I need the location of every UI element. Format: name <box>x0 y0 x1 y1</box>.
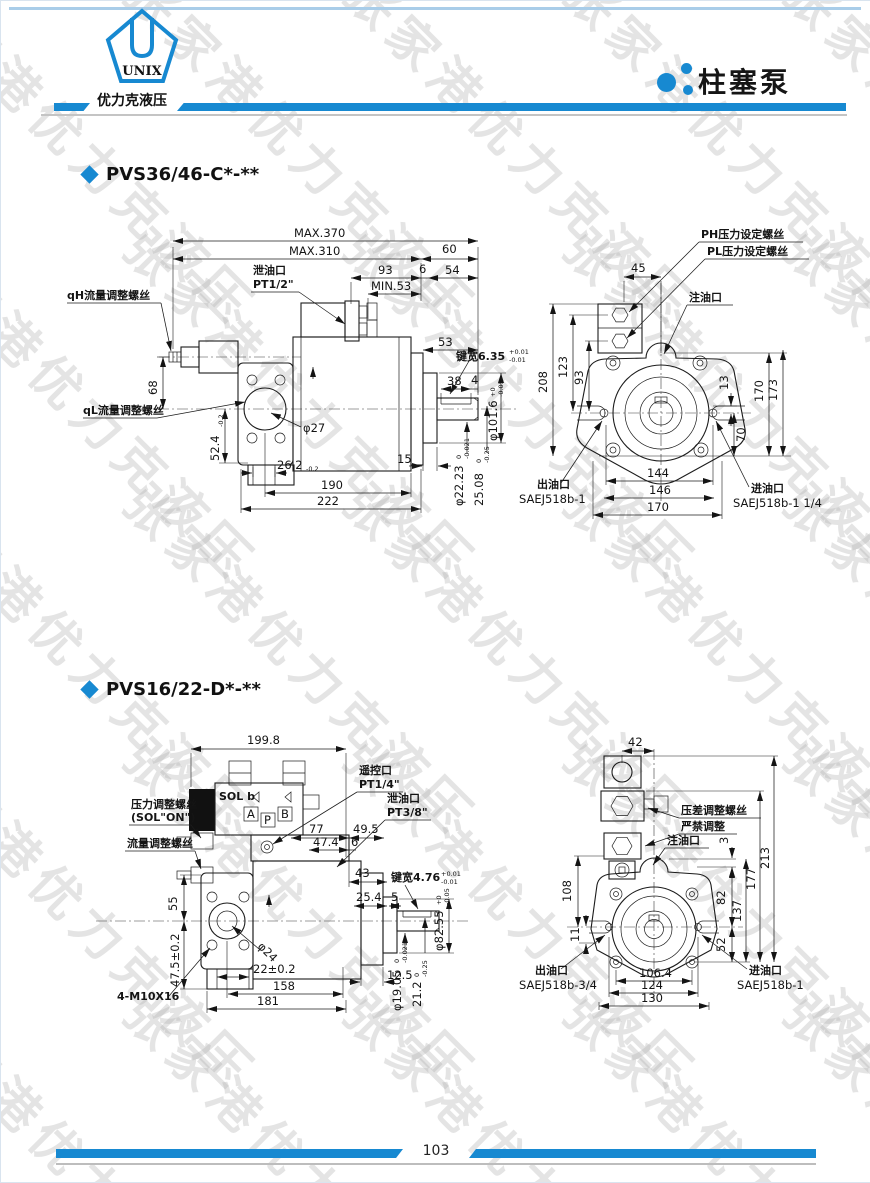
dim-4: 4 <box>471 373 478 387</box>
dim-77: 77 <box>309 822 324 836</box>
dim-21.2-tol-upper: 0 <box>413 973 421 977</box>
dim-dia101.6-tol-lower: -0.05 <box>497 380 505 397</box>
dim-170-bottom: 170 <box>647 500 669 514</box>
dim-52.4: 52.4 <box>208 435 222 461</box>
dim-dia19.05-tol-lower: -0.021 <box>401 942 409 963</box>
dim-55: 55 <box>166 896 180 911</box>
dim-6: 6 <box>419 262 426 276</box>
dim-25.4: 25.4 <box>356 890 382 904</box>
section1-model: PVS36/46-C*-** <box>106 164 259 185</box>
dim-max370: MAX.370 <box>294 226 345 240</box>
dim-dia101.6-tol-upper: +0 <box>489 387 497 397</box>
dim-43: 43 <box>355 866 370 880</box>
dim-45: 45 <box>631 261 646 275</box>
dim-5: 5 <box>391 890 398 904</box>
dim-21.2: 21.2 <box>410 981 424 1007</box>
dim-53: 53 <box>438 335 453 349</box>
dim-170-right: 170 <box>752 380 766 402</box>
diff-adjust-label: 压差调整螺丝 <box>681 803 747 817</box>
dim-60: 60 <box>442 242 457 256</box>
dim-min53: MIN.53 <box>371 279 411 293</box>
inlet-port-spec: SAEJ518b-1 1/4 <box>733 496 822 510</box>
dim-93: 93 <box>572 370 586 385</box>
fill-port-label: 注油口 <box>667 833 700 847</box>
dim-keywidth-tol-upper: +0.01 <box>441 870 461 878</box>
dim-47.4: 47.4 <box>313 835 339 849</box>
valve-port-b: B <box>281 807 289 821</box>
page-number: 103 <box>406 1143 466 1159</box>
dim-25.08-tol-lower: -0.25 <box>483 446 491 463</box>
section2-model: PVS16/22-D*-** <box>106 679 261 700</box>
dim-dia22.23: φ22.23 <box>452 465 466 506</box>
pl-setting-label: PL压力设定螺丝 <box>707 244 788 258</box>
dim-177: 177 <box>744 868 758 890</box>
outlet-port-spec: SAEJ518b-3/4 <box>519 978 597 992</box>
pvs1622-front-view: 压差调整螺丝 严禁调整 注油口 出油口 SAEJ518b-3/4 进油口 SAE… <box>519 735 804 1010</box>
drain-port-label: 泄油口 <box>253 263 286 277</box>
logo-text: UNIX <box>122 64 162 79</box>
dim-181: 181 <box>257 994 279 1008</box>
dim-keywidth-tol-lower: -0.01 <box>441 878 458 886</box>
dim-173: 173 <box>766 379 780 401</box>
dim-158: 158 <box>273 979 295 993</box>
diamond-icon <box>80 165 98 183</box>
pvs1622-side-view: 压力调整螺丝 (SOL"ON") 流量调整螺丝 遥控口 PT1/4" 泄油口 P… <box>96 733 471 1013</box>
dim-68: 68 <box>146 380 160 395</box>
dim-dia82.55: φ82.55 <box>432 910 446 951</box>
section1-title: PVS36/46-C*-** <box>83 164 259 185</box>
pvs3646-front-view: PH压力设定螺丝 PL压力设定螺丝 注油口 出油口 SAEJ518b-1 进油口… <box>519 227 822 519</box>
dim-dia82.55-tol-lower: -0.05 <box>443 888 451 905</box>
footer-bar-left <box>56 1149 403 1158</box>
forbid-adjust-label: 严禁调整 <box>680 819 725 833</box>
dim-22: 22±0.2 <box>253 962 296 976</box>
dim-max310: MAX.310 <box>289 244 340 258</box>
dim-108: 108 <box>560 880 574 902</box>
dim-82: 82 <box>714 890 728 905</box>
dim-93: 93 <box>378 263 393 277</box>
mounting-bolt-label: 4-M10X16 <box>117 990 180 1003</box>
dim-38: 38 <box>447 374 462 388</box>
solenoid-label: SOL b <box>219 790 255 803</box>
dim-199.8: 199.8 <box>247 733 280 747</box>
logo-u-shape <box>132 18 152 56</box>
dim-dia24: φ24 <box>255 939 281 965</box>
brand-dot-small-2 <box>683 85 693 95</box>
dim-123: 123 <box>556 356 570 378</box>
dim-25.08: 25.08 <box>472 473 486 506</box>
pump-outline <box>567 749 743 1001</box>
dim-130: 130 <box>641 991 663 1005</box>
drain-port-spec: PT3/8" <box>387 806 428 819</box>
outlet-port-label: 出油口 <box>535 963 568 977</box>
dim-47.5: 47.5±0.2 <box>168 933 182 987</box>
dim-texts: 42 3 82 52 137 177 213 108 11 106.4 124 … <box>560 735 772 1005</box>
footer-bar-right <box>469 1149 816 1158</box>
valve-port-a: A <box>247 807 255 821</box>
drain-port-spec: PT1/2" <box>253 278 294 291</box>
pressure-adjust-label: 压力调整螺丝 <box>131 797 197 811</box>
remote-port-spec: PT1/4" <box>359 778 400 791</box>
inlet-port-spec: SAEJ518b-1 <box>737 978 804 992</box>
remote-port-label: 遥控口 <box>359 763 392 777</box>
fill-port-label: 注油口 <box>689 290 722 304</box>
dim-dia22.23-tol-lower: -0.021 <box>463 438 471 459</box>
pressure-adjust-label2: (SOL"ON") <box>131 811 195 824</box>
qh-adjust-label: qH流量调整螺丝 <box>67 288 150 302</box>
outlet-port-spec: SAEJ518b-1 <box>519 492 586 506</box>
ph-setting-label: PH压力设定螺丝 <box>701 227 784 241</box>
section2-title: PVS16/22-D*-** <box>83 679 261 700</box>
company-name: 优力克液压 <box>97 90 167 110</box>
dim-52: 52 <box>714 937 728 952</box>
dim-keywidth: 键宽4.76 <box>390 870 440 884</box>
dim-208: 208 <box>536 371 550 393</box>
unix-logo: UNIX <box>96 7 188 89</box>
dim-42: 42 <box>628 735 643 749</box>
dim-dia101.6: φ101.6 <box>486 400 500 441</box>
dim-dia19.05-tol-upper: 0 <box>393 959 401 963</box>
dim-26.2: 26.2 <box>277 458 303 472</box>
dim-70: 70 <box>734 427 748 442</box>
dim-dia19.05: φ19.05 <box>390 970 404 1011</box>
inlet-port-label: 进油口 <box>751 481 784 495</box>
dim-keywidth-tol-upper: +0.01 <box>509 348 529 356</box>
page-title: 柱塞泵 <box>698 61 791 101</box>
drain-port-label: 泄油口 <box>387 791 420 805</box>
catalog-page: 张家港优力克液压 张家港优力克液压 张家港优力克液压 张家港优力克液压 张家港优… <box>0 0 870 1183</box>
dim-144: 144 <box>647 466 669 480</box>
dim-21.2-tol-lower: -0.25 <box>421 960 429 977</box>
dim-190: 190 <box>321 478 343 492</box>
valve-port-p: P <box>264 813 271 827</box>
dim-137: 137 <box>730 900 744 922</box>
dim-146: 146 <box>649 483 671 497</box>
header-bar-main <box>177 103 846 111</box>
dim-dia82.55-tol-upper: +0 <box>435 895 443 905</box>
brand-dot-small-1 <box>681 63 692 74</box>
dim-222: 222 <box>317 494 339 508</box>
dim-6: 6 <box>351 835 358 849</box>
dim-dia27: φ27 <box>303 421 325 435</box>
dim-keywidth: 键宽6.35 <box>455 349 505 363</box>
dim-25.08-tol-upper: 0 <box>475 459 483 463</box>
dim-keywidth-tol-lower: -0.01 <box>509 356 526 364</box>
dim-54: 54 <box>445 263 460 277</box>
dim-26.2-tol: -0.2 <box>306 465 319 473</box>
diamond-icon <box>80 680 98 698</box>
footer-underline <box>56 1163 816 1165</box>
dim-3: 3 <box>717 837 731 844</box>
dim-texts: MAX.370 MAX.310 60 93 MIN.53 6 54 53 键宽6… <box>146 226 529 508</box>
pvs3646-side-view: qH流量调整螺丝 qL流量调整螺丝 泄油口 PT1/2" MAX.370 MAX… <box>67 226 529 513</box>
dim-124: 124 <box>641 978 663 992</box>
outlet-port-label: 出油口 <box>537 477 570 491</box>
dim-13: 13 <box>717 375 731 390</box>
dim-11: 11 <box>568 927 582 942</box>
inlet-port-label: 进油口 <box>749 963 782 977</box>
dim-213: 213 <box>758 847 772 869</box>
dim-52.4-tol: -0.2 <box>217 414 225 427</box>
dim-15: 15 <box>397 452 412 466</box>
dim-dia22.23-tol-upper: 0 <box>455 455 463 459</box>
ql-adjust-label: qL流量调整螺丝 <box>83 403 164 417</box>
flow-adjust-label: 流量调整螺丝 <box>127 836 193 850</box>
dim-49.5: 49.5 <box>353 822 379 836</box>
brand-dot-large <box>657 73 676 92</box>
